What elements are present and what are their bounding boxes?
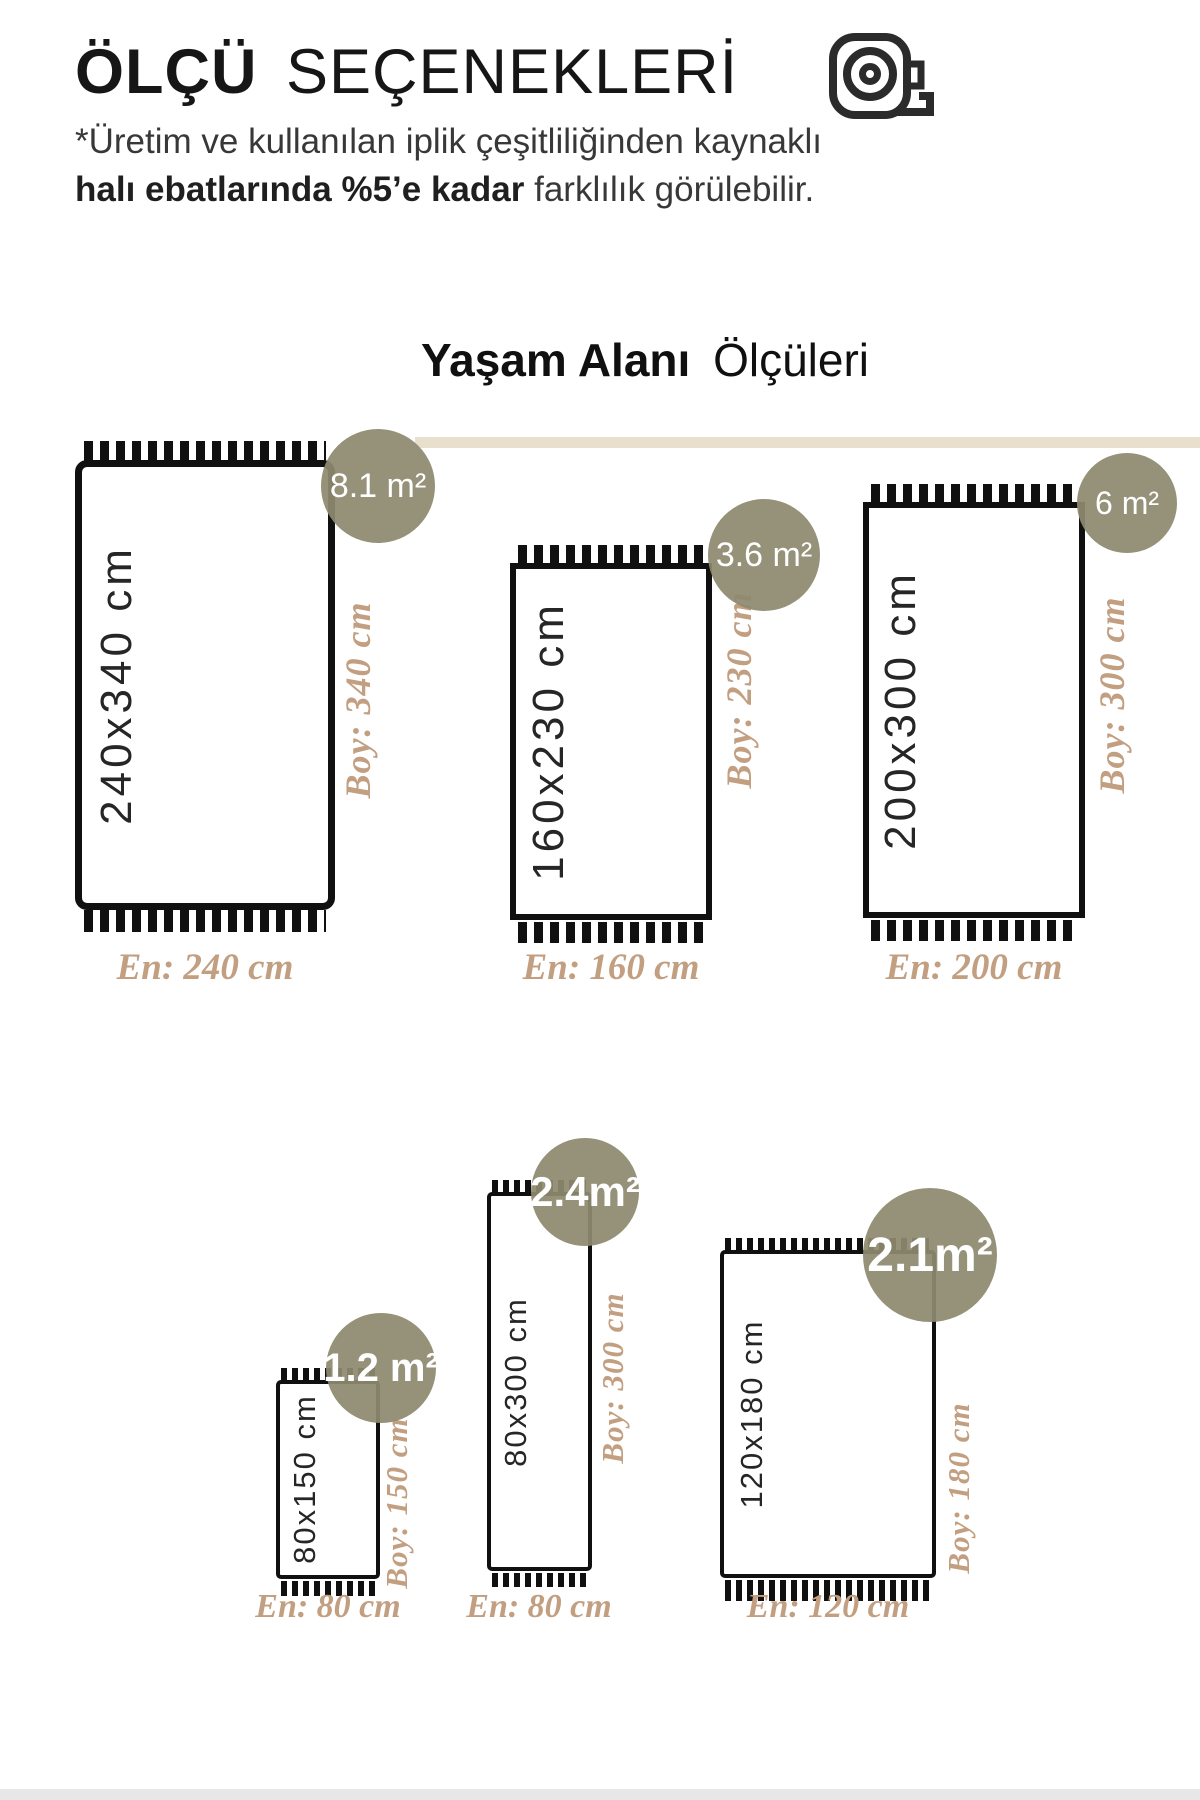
area-badge-label-80x150: 1.2 m² xyxy=(323,1346,439,1391)
rug-length-label-240x340: Boy: 340 cm xyxy=(337,602,379,799)
rug-width-label-160x230: En: 160 cm xyxy=(510,946,712,989)
area-badge-label-200x300: 6 m² xyxy=(1095,485,1159,522)
area-badge-160x230: 3.6 m² xyxy=(708,499,820,611)
page-title-primary: ÖLÇÜ xyxy=(75,37,257,107)
rug-fringe-top-240x340 xyxy=(84,441,326,461)
rug-width-label-240x340: En: 240 cm xyxy=(75,946,335,989)
rug-length-label-80x300: Boy: 300 cm xyxy=(595,1292,631,1463)
rug-fringe-top-160x230 xyxy=(518,545,704,564)
tape-measure-icon xyxy=(826,30,938,135)
section-heading-primary: Yaşam Alanı xyxy=(421,334,690,386)
rug-size-label-200x300: 200x300 cm xyxy=(876,570,926,850)
rug-fringe-top-200x300 xyxy=(871,484,1077,503)
size-tolerance-note: *Üretim ve kullanılan iplik çeşitliliğin… xyxy=(75,118,822,215)
heading-underline-band xyxy=(415,437,1200,448)
rug-fringe-bottom-80x300 xyxy=(492,1573,587,1587)
size-options-infographic: ÖLÇÜ SEÇENEKLERİ *Üretim ve kullanılan i… xyxy=(0,0,1200,1800)
section-heading-secondary: Ölçüleri xyxy=(713,334,869,386)
rug-width-label-80x150: En: 80 cm xyxy=(236,1588,420,1626)
area-badge-label-240x340: 8.1 m² xyxy=(330,467,426,506)
rug-width-label-80x300: En: 80 cm xyxy=(447,1588,631,1626)
area-badge-80x300: 2.4m² xyxy=(531,1138,639,1246)
area-badge-240x340: 8.1 m² xyxy=(321,429,435,543)
page-title-secondary: SEÇENEKLERİ xyxy=(286,37,738,107)
rug-fringe-bottom-240x340 xyxy=(84,910,326,932)
rug-size-label-240x340: 240x340 cm xyxy=(92,545,142,825)
area-badge-200x300: 6 m² xyxy=(1077,453,1177,553)
rug-size-label-120x180: 120x180 cm xyxy=(734,1320,770,1509)
area-badge-120x180: 2.1m² xyxy=(863,1188,997,1322)
page-title: ÖLÇÜ SEÇENEKLERİ xyxy=(75,36,738,108)
area-badge-label-80x300: 2.4m² xyxy=(530,1168,640,1216)
rug-size-label-160x230: 160x230 cm xyxy=(524,601,574,881)
rug-length-label-80x150: Boy: 150 cm xyxy=(379,1417,415,1588)
note-bold: halı ebatlarında %5’e kadar xyxy=(75,170,524,209)
note-line1: *Üretim ve kullanılan iplik çeşitliliğin… xyxy=(75,122,822,161)
rug-fringe-bottom-200x300 xyxy=(871,920,1077,941)
area-badge-label-120x180: 2.1m² xyxy=(867,1228,992,1283)
area-badge-label-160x230: 3.6 m² xyxy=(716,536,812,575)
rug-fringe-bottom-160x230 xyxy=(518,922,704,943)
rug-width-label-120x180: En: 120 cm xyxy=(728,1588,928,1626)
rug-length-label-160x230: Boy: 230 cm xyxy=(718,592,760,789)
rug-length-label-120x180: Boy: 180 cm xyxy=(941,1402,977,1573)
area-badge-80x150: 1.2 m² xyxy=(326,1313,436,1423)
section-heading: Yaşam Alanı Ölçüleri xyxy=(0,333,1200,387)
rug-length-label-200x300: Boy: 300 cm xyxy=(1091,597,1133,794)
rug-size-label-80x300: 80x300 cm xyxy=(498,1297,534,1467)
note-rest: farklılık görülebilir. xyxy=(524,170,814,209)
rug-size-label-80x150: 80x150 cm xyxy=(287,1394,323,1564)
rug-width-label-200x300: En: 200 cm xyxy=(863,946,1085,989)
footer-strip xyxy=(0,1789,1200,1800)
